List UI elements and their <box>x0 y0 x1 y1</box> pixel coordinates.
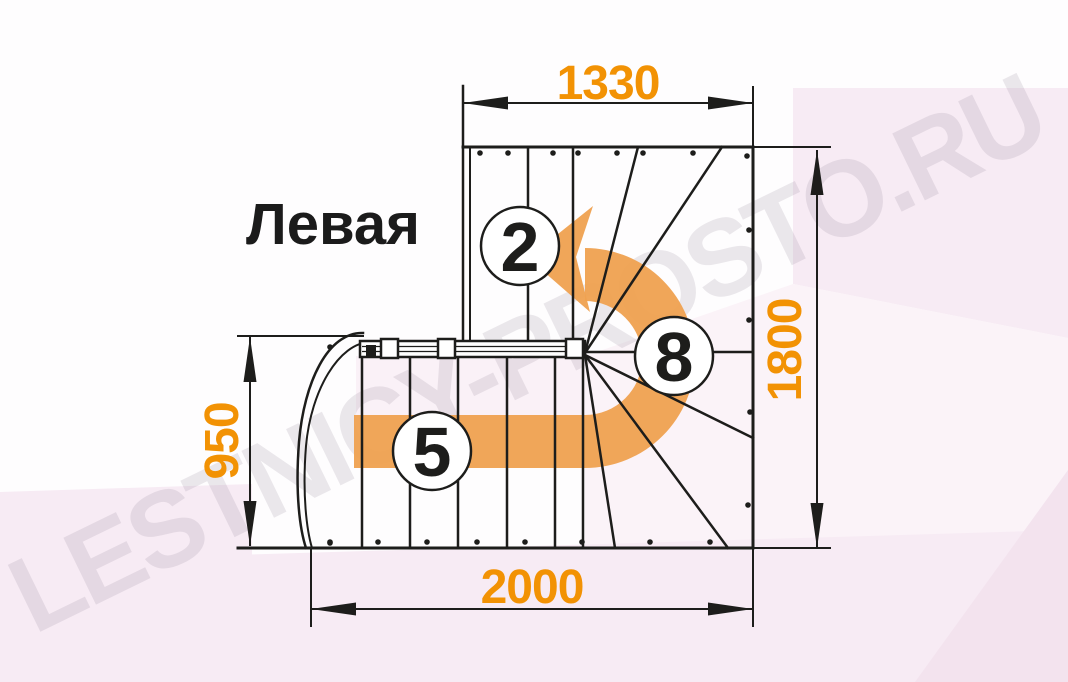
staircase-plan-drawing: LESTNICY-PROSTO.RU <box>0 0 1068 682</box>
newel-post <box>566 339 583 358</box>
dim-arrowhead <box>811 150 824 195</box>
dimension-left-height: 950 <box>199 371 249 511</box>
dimension-bottom-width: 2000 <box>432 564 632 612</box>
step-marker-upper: 2 <box>501 208 540 286</box>
dim-arrowhead <box>463 97 508 110</box>
dim-arrowhead <box>708 603 753 616</box>
step-marker-winder: 8 <box>655 318 694 396</box>
handrail-end-cap <box>366 345 376 356</box>
dimension-right-height: 1800 <box>762 280 812 420</box>
plan-title: Левая <box>246 196 420 254</box>
step-marker-lower: 5 <box>413 413 452 491</box>
newel-post <box>381 339 398 358</box>
dim-arrowhead <box>811 503 824 548</box>
dim-arrowhead <box>708 97 753 110</box>
dimension-top-width: 1330 <box>508 60 708 108</box>
newel-post <box>438 339 455 358</box>
handrail <box>360 339 585 358</box>
dim-arrowhead <box>311 603 356 616</box>
